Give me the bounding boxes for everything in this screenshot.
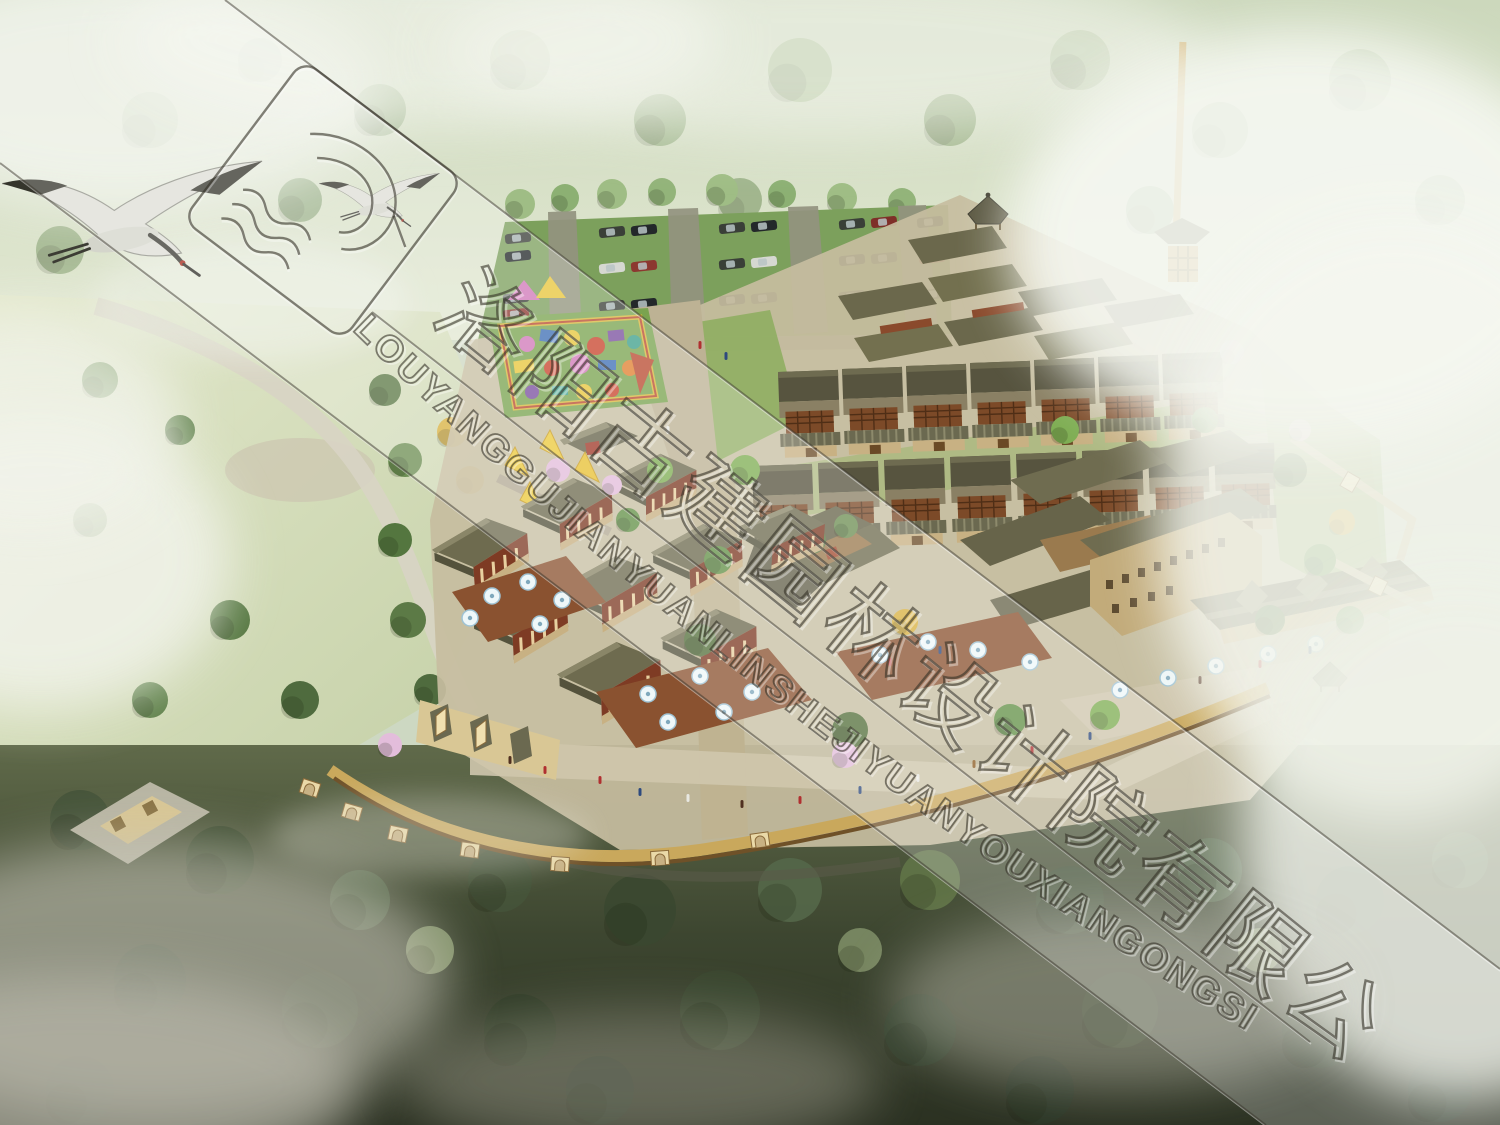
parasol-icon — [1160, 670, 1176, 686]
person-icon — [599, 776, 602, 784]
person-icon — [509, 756, 512, 764]
person-icon — [799, 796, 802, 804]
parasol-icon — [462, 610, 478, 626]
aerial-rendering: 洛阳古建园林设计院有限公司 洛阳古建园林设计院有限公司 LOUYANGGUJIA… — [0, 0, 1500, 1125]
person-icon — [687, 794, 690, 802]
parasol-icon — [660, 714, 676, 730]
rowhouse-unit — [970, 361, 1033, 449]
person-icon — [725, 352, 728, 360]
parasol-icon — [520, 574, 536, 590]
parasol-icon — [484, 588, 500, 604]
parasol-icon — [640, 686, 656, 702]
person-icon — [544, 766, 547, 774]
person-icon — [699, 341, 702, 349]
rowhouse-unit — [842, 367, 905, 455]
person-icon — [741, 800, 744, 808]
scene-canvas: 洛阳古建园林设计院有限公司 洛阳古建园林设计院有限公司 LOUYANGGUJIA… — [0, 0, 1500, 1125]
person-icon — [639, 788, 642, 796]
rowhouse-unit — [906, 364, 969, 452]
parasol-icon — [532, 616, 548, 632]
